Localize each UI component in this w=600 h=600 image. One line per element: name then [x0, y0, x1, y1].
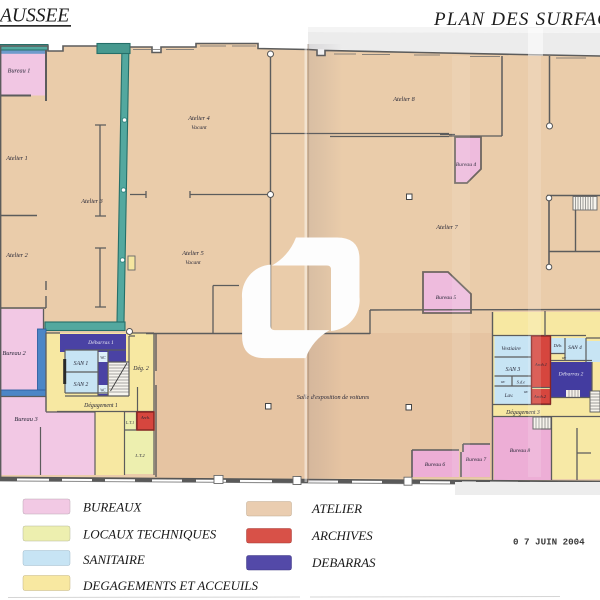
- svg-text:Bureau 1: Bureau 1: [8, 68, 31, 75]
- svg-text:DEGAGEMENTS ET ACCEUILS: DEGAGEMENTS ET ACCEUILS: [82, 578, 259, 593]
- svg-text:wc: wc: [524, 389, 529, 394]
- svg-text:ARCHIVES: ARCHIVES: [311, 528, 373, 543]
- svg-text:DEBARRAS: DEBARRAS: [311, 555, 376, 570]
- svg-text:Débarras 1: Débarras 1: [87, 340, 114, 346]
- svg-text:WC: WC: [100, 389, 106, 393]
- svg-text:L.T.2: L.T.2: [134, 453, 145, 458]
- svg-text:Dég. 2: Dég. 2: [132, 366, 149, 372]
- svg-text:S.d.e: S.d.e: [517, 380, 526, 385]
- svg-text:Débarras 2: Débarras 2: [558, 372, 584, 378]
- svg-text:AUSSEE: AUSSEE: [0, 6, 69, 27]
- svg-text:WC: WC: [100, 356, 106, 360]
- svg-text:Déb.: Déb.: [553, 343, 563, 348]
- svg-text:ATELIER: ATELIER: [311, 501, 362, 516]
- svg-text:0 7 JUIN 2004: 0 7 JUIN 2004: [513, 537, 585, 548]
- svg-text:Arch.: Arch.: [140, 415, 150, 420]
- svg-text:BUREAUX: BUREAUX: [83, 500, 143, 515]
- svg-text:SANITAIRE: SANITAIRE: [83, 552, 145, 567]
- svg-text:Bureau 6: Bureau 6: [425, 462, 446, 468]
- svg-text:L.T.1: L.T.1: [125, 420, 134, 425]
- svg-text:Dégagement 1: Dégagement 1: [83, 403, 118, 409]
- svg-text:Atelier 4: Atelier 4: [187, 115, 209, 122]
- svg-text:Vestiaire: Vestiaire: [501, 346, 521, 352]
- svg-text:Vacant: Vacant: [185, 260, 201, 266]
- svg-text:wc: wc: [501, 379, 506, 384]
- svg-text:Vacant: Vacant: [191, 125, 207, 131]
- svg-text:SAN 4: SAN 4: [568, 345, 582, 351]
- svg-text:Lav.: Lav.: [504, 393, 514, 399]
- svg-text:SAN 2: SAN 2: [74, 382, 89, 388]
- svg-text:SAN 3: SAN 3: [506, 367, 521, 373]
- svg-text:Bureau 8: Bureau 8: [510, 448, 531, 454]
- svg-text:Atelier 2: Atelier 2: [5, 252, 27, 259]
- svg-text:SAN 1: SAN 1: [74, 361, 89, 367]
- svg-text:Bureau 3: Bureau 3: [14, 416, 37, 423]
- svg-text:wc: wc: [562, 355, 567, 360]
- svg-text:Atelier 5: Atelier 5: [181, 250, 203, 257]
- svg-text:Atelier 3: Atelier 3: [80, 198, 102, 205]
- svg-text:PLAN DES SURFACES: PLAN DES SURFACES: [433, 9, 600, 30]
- svg-text:Atelier 8: Atelier 8: [392, 96, 415, 103]
- svg-text:Atelier 1: Atelier 1: [5, 155, 27, 162]
- svg-text:Bureau 2: Bureau 2: [2, 350, 26, 357]
- svg-text:LOCAUX TECHNIQUES: LOCAUX TECHNIQUES: [82, 527, 217, 542]
